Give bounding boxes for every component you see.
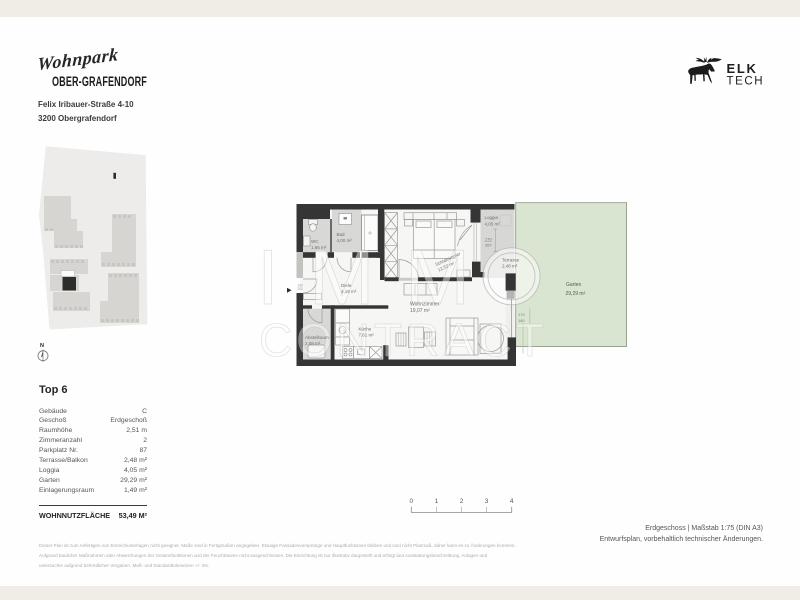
svg-text:Terrasse: Terrasse xyxy=(502,258,520,263)
svg-text:0: 0 xyxy=(409,498,413,505)
svg-text:4: 4 xyxy=(510,498,514,505)
svg-text:3: 3 xyxy=(485,498,489,505)
svg-text:Bad: Bad xyxy=(337,232,346,237)
svg-text:7,61 m²: 7,61 m² xyxy=(359,333,375,338)
svg-text:2: 2 xyxy=(460,498,464,505)
svg-text:N: N xyxy=(40,343,44,349)
svg-text:170: 170 xyxy=(518,312,525,317)
svg-text:1: 1 xyxy=(435,498,439,505)
svg-text:Diele: Diele xyxy=(341,283,352,288)
svg-text:CONTRACT: CONTRACT xyxy=(259,314,544,366)
svg-text:202: 202 xyxy=(298,287,304,291)
svg-text:2,08 m²: 2,08 m² xyxy=(305,341,321,346)
svg-text:170: 170 xyxy=(485,237,492,242)
svg-text:4,00 m²: 4,00 m² xyxy=(337,238,353,243)
svg-text:4,05 m²: 4,05 m² xyxy=(485,222,501,227)
svg-text:2,48 m²: 2,48 m² xyxy=(502,264,518,269)
svg-text:1,66 m²: 1,66 m² xyxy=(311,245,327,250)
svg-text:267: 267 xyxy=(485,243,492,248)
svg-text:Loggia: Loggia xyxy=(485,215,499,220)
svg-text:Abstellraum: Abstellraum xyxy=(305,335,329,340)
svg-text:29,29 m²: 29,29 m² xyxy=(566,291,586,297)
svg-text:180: 180 xyxy=(518,318,525,323)
svg-text:4,18 m²: 4,18 m² xyxy=(341,289,357,294)
svg-text:IMM: IMM xyxy=(257,233,470,321)
svg-text:Küche: Küche xyxy=(359,327,372,332)
svg-text:WC: WC xyxy=(311,239,319,244)
svg-text:19,07 m²: 19,07 m² xyxy=(410,308,430,314)
svg-text:Garten: Garten xyxy=(566,282,582,288)
svg-text:Wohnzimmer: Wohnzimmer xyxy=(410,302,440,308)
